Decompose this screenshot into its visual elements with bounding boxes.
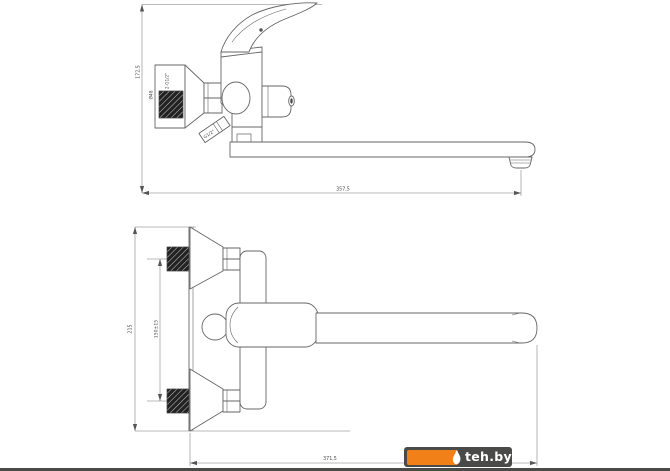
upper-union-nut [223,248,240,270]
watermark-text: teh.by [465,447,512,467]
spout-side [230,127,535,168]
upper-threaded-connection-hatch [167,247,189,271]
aerator [509,157,532,168]
handle-knob-top [202,314,228,340]
diverter-knob [262,86,294,117]
lower-union-nut [223,390,240,412]
dim-height-label: 172,5 [136,65,142,79]
watermark-teh-by: teh.by [404,447,512,467]
handle-body-top [226,303,318,347]
side-view-drawing: 172,5 Ø48 2-G1/2" G1/2" 357,5 [136,3,536,196]
technical-drawing-page: 172,5 Ø48 2-G1/2" G1/2" 357,5 [0,0,670,471]
valve-body-circle [222,82,250,114]
plan-view-drawing: 215 150±15 371,5 [128,227,538,466]
dim-length-label: 371,5 [323,456,337,462]
union-nut [204,83,222,113]
lever-handle [221,3,317,52]
dim-reach-label: 357,5 [336,187,350,193]
upper-escutcheon-cone [190,227,223,289]
spout-top [316,313,537,343]
escutcheon-cone [185,65,204,128]
lower-threaded-connection-hatch [167,389,189,413]
dim-escutcheon-label: Ø48 [148,90,155,99]
flame-icon [452,450,462,465]
dim-span-label: 215 [128,324,134,333]
teh-by-logo-block [407,450,458,465]
dim-centers-label: 150±15 [154,320,160,339]
faucet-dimension-drawing: 172,5 Ø48 2-G1/2" G1/2" 357,5 [0,0,670,471]
dim-connections-label: 2-G1/2" [165,73,170,89]
threaded-nipple-hatch [159,91,183,118]
lower-escutcheon-cone [190,369,223,431]
